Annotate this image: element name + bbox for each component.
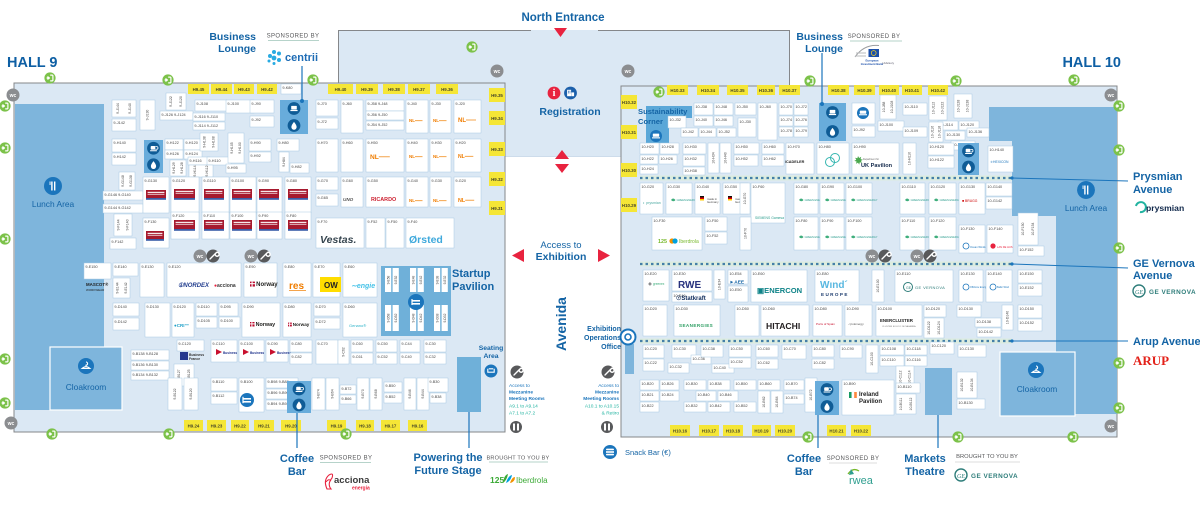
svg-text:BROUGHT TO YOU BY: BROUGHT TO YOU BY: [487, 456, 550, 462]
svg-text:9-J144: 9-J144: [116, 103, 120, 114]
svg-text:10-C70: 10-C70: [783, 347, 795, 351]
svg-text:10-B72: 10-B72: [809, 389, 813, 400]
svg-text:10-D130: 10-D130: [958, 307, 973, 311]
svg-text:9-D48: 9-D48: [411, 313, 415, 322]
svg-text:10-D120: 10-D120: [925, 307, 940, 311]
svg-text:Lounge: Lounge: [805, 43, 843, 55]
svg-text:10-D140: 10-D140: [1006, 311, 1010, 324]
svg-text:10-C120: 10-C120: [931, 344, 946, 348]
svg-text:10-J48: 10-J48: [715, 105, 727, 109]
svg-text:9-G90: 9-G90: [258, 179, 269, 183]
svg-text:9-G110: 9-G110: [203, 179, 215, 183]
svg-text:Department for: Department for: [863, 158, 879, 161]
svg-text:9-C70: 9-C70: [317, 342, 327, 346]
svg-text:10-B74: 10-B74: [785, 396, 797, 400]
svg-text:H9.32: H9.32: [491, 177, 503, 182]
svg-text:9-J92: 9-J92: [251, 118, 261, 122]
svg-text:9-F90: 9-F90: [258, 214, 268, 218]
svg-text:H9.38: H9.38: [388, 87, 400, 92]
svg-text:10-B90: 10-B90: [843, 382, 855, 386]
svg-text:Pavilion: Pavilion: [859, 399, 882, 405]
svg-text:9-F144: 9-F144: [117, 219, 121, 230]
svg-text:10-G20: 10-G20: [641, 185, 654, 189]
svg-text:10-B24: 10-B24: [661, 393, 673, 397]
svg-text:10-D60: 10-D60: [762, 307, 774, 311]
svg-text:H10.21: H10.21: [829, 428, 844, 433]
svg-text:9-D52: 9-D52: [394, 313, 398, 322]
svg-text:9-E120: 9-E120: [168, 265, 180, 269]
svg-text:9-D95: 9-D95: [220, 305, 230, 309]
svg-text:10-J60: 10-J60: [759, 105, 771, 109]
svg-text:9-E38: 9-E38: [435, 275, 439, 284]
svg-text:9-H114: 9-H114: [193, 165, 197, 176]
svg-text:9-B50: 9-B50: [385, 384, 395, 388]
svg-text:Business: Business: [277, 351, 291, 355]
svg-text:H9.21: H9.21: [258, 423, 270, 428]
svg-text:9-D100: 9-D100: [220, 319, 232, 323]
svg-text:9-D120: 9-D120: [173, 305, 185, 309]
svg-text:NL: NL: [433, 198, 439, 203]
svg-text:10-H122: 10-H122: [929, 158, 944, 162]
svg-text:GREEN ENERGY: GREEN ENERGY: [857, 235, 878, 239]
svg-text:H10.17: H10.17: [702, 428, 717, 433]
svg-text:10-H28: 10-H28: [661, 145, 673, 149]
svg-text:SPONSORED BY: SPONSORED BY: [320, 456, 373, 462]
svg-text:centrii: centrii: [285, 52, 318, 64]
svg-text:10-H40: 10-H40: [724, 152, 728, 164]
svg-text:■ BRUGG: ■ BRUGG: [962, 199, 978, 203]
svg-text:Coffee: Coffee: [787, 453, 821, 465]
svg-text:wc: wc: [247, 254, 255, 260]
svg-text:9-D130: 9-D130: [146, 305, 158, 309]
svg-text:9-H92: 9-H92: [250, 154, 260, 158]
svg-text:10-E80: 10-E80: [816, 272, 828, 276]
svg-text:LAN DE HUS: LAN DE HUS: [997, 245, 1013, 249]
svg-text:wc: wc: [7, 421, 15, 427]
svg-text:H10.32: H10.32: [622, 100, 637, 105]
svg-text:H9.33: H9.33: [491, 147, 503, 152]
svg-text:9-H30: 9-H30: [431, 141, 441, 145]
svg-text:9-B112: 9-B112: [212, 394, 224, 398]
svg-text:9-J120: 9-J120: [179, 96, 183, 107]
svg-text:H10.42: H10.42: [931, 88, 946, 93]
svg-text:9-J58 9-J48: 9-J58 9-J48: [367, 102, 387, 106]
svg-text:10-H60: 10-H60: [763, 145, 775, 149]
svg-text:⚛HEXICON: ⚛HEXICON: [990, 160, 1009, 164]
svg-text:9-B72: 9-B72: [341, 387, 351, 391]
svg-text:H9.36: H9.36: [441, 87, 453, 92]
svg-text:9-H110: 9-H110: [208, 159, 220, 163]
svg-text:10-E50: 10-E50: [729, 288, 741, 292]
svg-text:10-B112: 10-B112: [909, 397, 913, 410]
svg-text:9-G40: 9-G40: [407, 179, 418, 183]
svg-text:Arup Avenue: Arup Avenue: [1133, 336, 1200, 348]
svg-text:10-G70: 10-G70: [743, 193, 747, 205]
svg-text:H9.45: H9.45: [193, 87, 205, 92]
svg-text:9-D38: 9-D38: [435, 313, 439, 322]
svg-text:10-D90: 10-D90: [846, 307, 858, 311]
svg-text:9-H105: 9-H105: [230, 142, 234, 154]
svg-text:9-J142: 9-J142: [113, 121, 125, 125]
svg-text:North Entrance: North Entrance: [521, 12, 604, 24]
svg-text:Offshore Energy: Offshore Energy: [970, 286, 988, 289]
svg-text:H9.34: H9.34: [491, 116, 503, 121]
svg-text:Coffee: Coffee: [280, 453, 314, 465]
svg-text:H10.31: H10.31: [622, 130, 637, 135]
svg-text:Lunch Area: Lunch Area: [32, 199, 75, 209]
svg-text:H10.20: H10.20: [778, 428, 793, 433]
svg-text:GREEN ENERGY: GREEN ENERGY: [940, 235, 961, 239]
svg-text:10-B70: 10-B70: [785, 382, 797, 386]
svg-text:GREEN ENERGY: GREEN ENERGY: [911, 198, 932, 202]
svg-text:wc: wc: [493, 69, 501, 75]
svg-text:9-K80: 9-K80: [282, 86, 292, 90]
svg-text:10-B130: 10-B130: [958, 401, 972, 405]
svg-text:Avenue: Avenue: [1133, 184, 1172, 196]
svg-text:10-H22: 10-H22: [641, 157, 653, 161]
svg-text:☉Statkraft: ☉Statkraft: [676, 295, 706, 302]
svg-text:10-H110: 10-H110: [908, 152, 912, 165]
svg-text:NL: NL: [458, 154, 465, 160]
svg-text:UNO: UNO: [343, 197, 354, 202]
svg-text:10-E100: 10-E100: [876, 279, 880, 292]
svg-text:9-B94 9-B92: 9-B94 9-B92: [267, 402, 288, 406]
svg-text:9-B100: 9-B100: [240, 380, 252, 384]
svg-text:Markets: Markets: [904, 453, 946, 465]
svg-text:10-E110: 10-E110: [896, 272, 910, 276]
svg-text:10-G40: 10-G40: [696, 185, 709, 189]
svg-text:10-C38: 10-C38: [702, 347, 714, 351]
svg-text:9-G120: 9-G120: [172, 179, 185, 183]
svg-text:9-C90: 9-C90: [267, 342, 277, 346]
svg-text:Mezzanine: Mezzanine: [595, 390, 619, 396]
svg-text:H10.40: H10.40: [882, 88, 897, 93]
svg-text:9-C82: 9-C82: [291, 355, 301, 359]
svg-text:H10.39: H10.39: [857, 88, 872, 93]
svg-text:10-J108: 10-J108: [890, 101, 894, 114]
svg-text:9-D58: 9-D58: [386, 313, 390, 322]
svg-text:10-J50: 10-J50: [736, 105, 748, 109]
svg-text:10-D100: 10-D100: [877, 307, 892, 311]
svg-text:9-G148: 9-G148: [121, 175, 125, 187]
svg-text:9-E58: 9-E58: [386, 275, 390, 284]
svg-text:Ports of Spain: Ports of Spain: [816, 322, 835, 326]
svg-text:9-H120: 9-H120: [185, 141, 197, 145]
svg-text:10-J136: 10-J136: [968, 130, 982, 134]
svg-text:10-F50: 10-F50: [706, 219, 718, 223]
svg-text:9-H126: 9-H126: [166, 152, 178, 156]
svg-text:9-F100: 9-F100: [231, 214, 243, 218]
svg-text:H9.19: H9.19: [331, 423, 343, 428]
svg-text:10-E152: 10-E152: [1019, 286, 1033, 290]
svg-text:wc: wc: [624, 69, 632, 75]
svg-text:10-B40: 10-B40: [697, 393, 709, 397]
svg-text:9-J20: 9-J20: [455, 102, 465, 106]
svg-text:H9.16: H9.16: [412, 423, 424, 428]
svg-text:Corner: Corner: [638, 117, 663, 126]
svg-text:10-H38: 10-H38: [684, 169, 696, 173]
svg-text:acciona: acciona: [334, 475, 370, 486]
svg-text:A7.1 to A7.2: A7.1 to A7.2: [509, 411, 535, 417]
svg-text:H9.37: H9.37: [413, 87, 425, 92]
svg-text:A9.1 to A9.14: A9.1 to A9.14: [509, 404, 538, 410]
svg-text:GREEN ENERGY: GREEN ENERGY: [940, 198, 961, 202]
svg-text:| Advisory: | Advisory: [882, 61, 895, 65]
svg-text:HALL 9: HALL 9: [7, 55, 58, 71]
svg-text:GREEN ENERGY: GREEN ENERGY: [677, 198, 698, 202]
svg-text:9-E70: 9-E70: [314, 265, 324, 269]
svg-text:H10.35: H10.35: [730, 88, 745, 93]
svg-text:9-B134 9-B132: 9-B134 9-B132: [132, 373, 158, 377]
svg-text:H9.44: H9.44: [216, 87, 228, 92]
svg-text:10-G142: 10-G142: [987, 199, 1002, 203]
svg-text:9-G100: 9-G100: [231, 179, 244, 183]
svg-text:10-J100: 10-J100: [879, 123, 893, 127]
svg-text:10-B134: 10-B134: [970, 378, 974, 391]
svg-text:9-B44: 9-B44: [421, 389, 425, 398]
svg-text:10-C100: 10-C100: [870, 352, 874, 365]
svg-text:9-C62: 9-C62: [342, 347, 346, 357]
svg-text:10-C82: 10-C82: [813, 361, 825, 365]
svg-text:OW: OW: [324, 281, 338, 290]
svg-text:10-J42: 10-J42: [682, 130, 694, 134]
svg-text:10-E20: 10-E20: [644, 272, 656, 276]
svg-text:10-H140: 10-H140: [989, 148, 1004, 152]
svg-text:Business: Business: [209, 31, 256, 43]
svg-text:9-G65: 9-G65: [317, 196, 328, 200]
svg-text:Investment Bank: Investment Bank: [861, 62, 884, 66]
svg-text:9-D72: 9-D72: [315, 320, 325, 324]
svg-text:GE: GE: [957, 474, 965, 480]
svg-text:rwea: rwea: [849, 475, 874, 487]
svg-text:Cloakroom: Cloakroom: [66, 382, 107, 392]
svg-text:9-H108: 9-H108: [212, 136, 216, 148]
svg-text:9-C60: 9-C60: [352, 342, 362, 346]
svg-text:Sustainability: Sustainability: [638, 107, 688, 116]
svg-text:Avenida: Avenida: [553, 297, 569, 351]
svg-text:A10.1 to A10.15: A10.1 to A10.15: [585, 404, 619, 410]
svg-text:9-D32: 9-D32: [443, 313, 447, 322]
svg-text:Access to: Access to: [598, 383, 619, 389]
svg-text:9-C32: 9-C32: [425, 355, 435, 359]
svg-text:9-D90: 9-D90: [243, 305, 253, 309]
svg-text:9-B136 9-B130: 9-B136 9-B130: [132, 363, 158, 367]
svg-text:10-C116: 10-C116: [906, 358, 920, 362]
svg-text:10-B26: 10-B26: [661, 382, 673, 386]
svg-text:9-J122: 9-J122: [169, 96, 173, 107]
svg-text:NL: NL: [458, 118, 466, 124]
svg-text:9-C50: 9-C50: [377, 342, 387, 346]
svg-text:10-B52: 10-B52: [735, 404, 747, 408]
svg-text:10-J122: 10-J122: [941, 102, 945, 115]
svg-text:NL: NL: [433, 118, 439, 123]
svg-text:Ireland: Ireland: [859, 392, 879, 398]
svg-text:9-D140: 9-D140: [114, 305, 126, 309]
svg-text:HITACHI: HITACHI: [766, 321, 800, 331]
svg-text:Ørsted: Ørsted: [409, 234, 443, 246]
svg-text:9-F110: 9-F110: [203, 214, 215, 218]
svg-text:10-C118: 10-C118: [906, 347, 920, 351]
svg-text:10-D152: 10-D152: [1019, 321, 1034, 325]
svg-text:9-J100: 9-J100: [227, 102, 239, 106]
svg-text:10-H50: 10-H50: [735, 145, 747, 149]
svg-text:9-G60: 9-G60: [342, 179, 353, 183]
svg-text:9-F52: 9-F52: [367, 220, 377, 224]
svg-text:Cloakroom: Cloakroom: [1017, 384, 1058, 394]
svg-text:10-J110: 10-J110: [904, 105, 917, 109]
svg-text:9-D142: 9-D142: [114, 320, 126, 324]
svg-text:10-J70: 10-J70: [780, 105, 792, 109]
svg-text:Exhibition: Exhibition: [587, 326, 621, 333]
svg-text:EUROPE: EUROPE: [821, 292, 849, 297]
svg-text:10-J32: 10-J32: [669, 118, 681, 122]
svg-text:prysmian: prysmian: [1146, 203, 1184, 213]
svg-text:Pavilion: Pavilion: [452, 281, 494, 293]
svg-text:wc: wc: [1107, 93, 1115, 99]
svg-text:Norway: Norway: [256, 322, 275, 328]
svg-text:9-H124: 9-H124: [185, 152, 197, 156]
svg-text:9-E60: 9-E60: [344, 265, 354, 269]
svg-text:9-F140: 9-F140: [126, 219, 130, 230]
svg-text:H9.43: H9.43: [238, 87, 250, 92]
svg-text:BROUGHT TO YOU BY: BROUGHT TO YOU BY: [956, 454, 1018, 460]
svg-text:10-B42: 10-B42: [709, 404, 721, 408]
svg-text:9-C100: 9-C100: [240, 342, 252, 346]
svg-text:Avenue: Avenue: [1133, 270, 1172, 282]
svg-text:9-H142: 9-H142: [113, 155, 125, 159]
svg-text:10-C22: 10-C22: [644, 361, 656, 365]
svg-text:10-J72: 10-J72: [795, 105, 807, 109]
svg-text:SIEMENS Gamesa: SIEMENS Gamesa: [755, 216, 784, 220]
svg-text:10-H34: 10-H34: [712, 152, 716, 164]
svg-text:10-G90: 10-G90: [821, 185, 834, 189]
svg-text:9-H50: 9-H50: [367, 141, 377, 145]
svg-text:9-B122: 9-B122: [173, 388, 177, 399]
svg-text:10-J52: 10-J52: [718, 130, 730, 134]
svg-text:wc: wc: [196, 254, 204, 260]
svg-text:9-J72: 9-J72: [317, 120, 327, 124]
svg-text:9-H20: 9-H20: [455, 141, 465, 145]
svg-text:10-C108: 10-C108: [881, 347, 896, 351]
svg-text:NL: NL: [409, 118, 415, 123]
svg-text:SPONSORED BY: SPONSORED BY: [267, 34, 320, 40]
svg-text:Seating: Seating: [479, 345, 504, 352]
svg-text:H10.18: H10.18: [726, 428, 741, 433]
svg-text:10-E34: 10-E34: [718, 279, 722, 290]
svg-text:SEANERGIES: SEANERGIES: [679, 323, 713, 328]
svg-text:Germany: Germany: [707, 200, 719, 204]
svg-text:NL: NL: [433, 154, 439, 159]
svg-text:9-G130: 9-G130: [144, 179, 157, 183]
svg-text:9-E52: 9-E52: [394, 275, 398, 284]
svg-text:10-G50: 10-G50: [724, 185, 737, 189]
svg-text:9-J130: 9-J130: [146, 110, 150, 121]
svg-text:9-H116: 9-H116: [189, 159, 201, 163]
svg-text:9-H140: 9-H140: [113, 141, 125, 145]
svg-text:10-G100: 10-G100: [847, 185, 862, 189]
svg-text:NL: NL: [458, 198, 466, 204]
svg-text:GE VERNOVA: GE VERNOVA: [1149, 289, 1196, 296]
svg-text:NL: NL: [370, 154, 379, 161]
svg-text:9-H129: 9-H129: [172, 162, 176, 174]
svg-text:10-H90: 10-H90: [853, 145, 865, 149]
svg-text:10-C32: 10-C32: [669, 365, 681, 369]
svg-text:►AEE: ►AEE: [730, 280, 745, 286]
svg-text:9-J114 9-J112: 9-J114 9-J112: [194, 124, 218, 128]
svg-text:10-J76: 10-J76: [795, 118, 807, 122]
svg-text:9-D105: 9-D105: [197, 319, 209, 323]
svg-text:WORKWEAR: WORKWEAR: [86, 288, 105, 292]
svg-text:●CRI™: ●CRI™: [174, 323, 189, 328]
svg-text:GE: GE: [906, 286, 912, 290]
svg-text:10-H24: 10-H24: [641, 167, 653, 171]
svg-text:i: i: [553, 88, 556, 99]
svg-text:9-B98 9-B88: 9-B98 9-B88: [267, 380, 288, 384]
svg-text:10-J74: 10-J74: [780, 118, 792, 122]
svg-text:10-F52: 10-F52: [706, 234, 718, 238]
svg-text:Operations: Operations: [584, 335, 621, 342]
svg-text:10-B62: 10-B62: [762, 396, 766, 407]
svg-text:H9.40: H9.40: [335, 87, 347, 92]
svg-text:10-G130: 10-G130: [960, 185, 975, 189]
svg-text:10-C20: 10-C20: [644, 347, 656, 351]
svg-text:10-J78: 10-J78: [780, 129, 792, 133]
svg-text:GREEN ENERGY: GREEN ENERGY: [911, 235, 932, 239]
svg-text:9-E150: 9-E150: [85, 265, 97, 269]
svg-text:H9.20: H9.20: [285, 423, 297, 428]
svg-text:10-C40: 10-C40: [713, 366, 725, 370]
svg-text:9-C80: 9-C80: [291, 342, 301, 346]
svg-text:10-D80: 10-D80: [814, 307, 826, 311]
svg-text:10-H52: 10-H52: [735, 157, 747, 161]
svg-text:H9.39: H9.39: [361, 87, 373, 92]
svg-text:10-B132: 10-B132: [960, 378, 964, 391]
svg-text:9-E42: 9-E42: [419, 275, 423, 284]
svg-text:GE: GE: [1135, 290, 1143, 296]
svg-text:9-J116 9-J110: 9-J116 9-J110: [194, 115, 218, 119]
svg-text:9-E130: 9-E130: [141, 265, 153, 269]
svg-text:Access to: Access to: [540, 240, 581, 251]
svg-text:GE VERNOVA: GE VERNOVA: [915, 285, 945, 290]
svg-text:Bar: Bar: [795, 466, 814, 478]
svg-text:10-B21: 10-B21: [641, 393, 653, 397]
svg-text:9-H82: 9-H82: [291, 165, 301, 169]
svg-text:9-J56 9-J50: 9-J56 9-J50: [367, 113, 387, 117]
svg-text:& Retiro: & Retiro: [602, 411, 620, 417]
svg-text:9-G80: 9-G80: [286, 179, 297, 183]
svg-text:10-B22: 10-B22: [641, 404, 653, 408]
svg-text:10-F152: 10-F152: [1019, 248, 1033, 252]
svg-text:9-C110: 9-C110: [212, 342, 224, 346]
svg-text:9-C120: 9-C120: [178, 342, 190, 346]
svg-text:9-F50: 9-F50: [387, 220, 397, 224]
svg-text:10-C114: 10-C114: [908, 370, 912, 383]
svg-text:ARUP: ARUP: [1133, 353, 1169, 368]
svg-text:10-D20: 10-D20: [644, 307, 656, 311]
svg-text:9-J140: 9-J140: [128, 103, 132, 114]
svg-text:9-B46: 9-B46: [408, 389, 412, 398]
svg-text:125: 125: [490, 475, 504, 485]
svg-text:∼engie: ∼engie: [351, 283, 375, 290]
svg-text:Prysmian: Prysmian: [1133, 171, 1183, 183]
svg-text:wc: wc: [868, 254, 876, 260]
svg-text:Bar: Bar: [288, 466, 307, 478]
svg-text:10-J38: 10-J38: [695, 105, 707, 109]
svg-text:9-F40: 9-F40: [407, 220, 417, 224]
svg-text:10-J118: 10-J118: [938, 126, 942, 138]
svg-text:9-B66: 9-B66: [341, 397, 351, 401]
svg-text:H10.41: H10.41: [905, 88, 920, 93]
